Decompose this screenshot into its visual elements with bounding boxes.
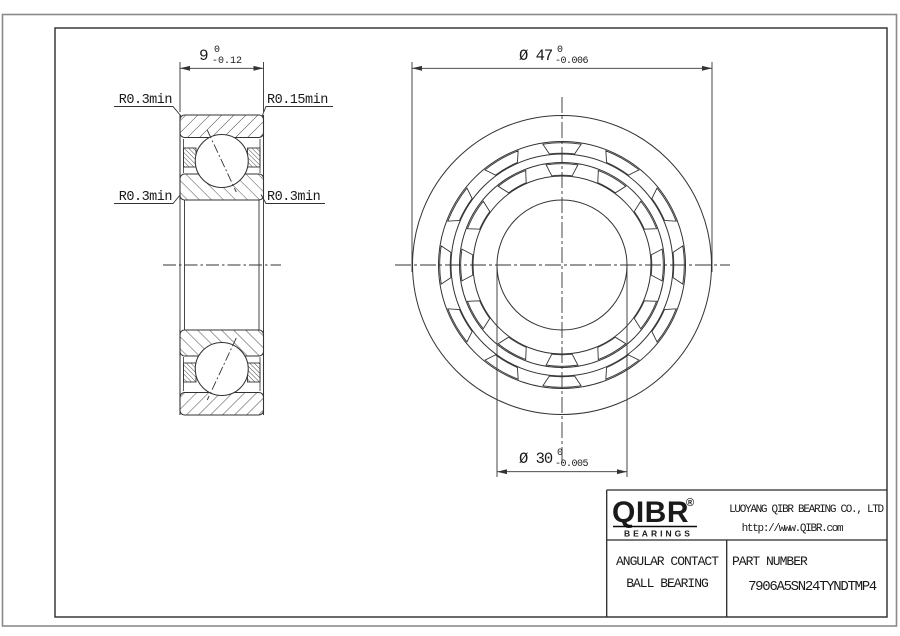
bearing-drawing-canvas: 9 0 -0.12 R0.3min R0.15min R0.3min R0.3m… (0, 0, 900, 636)
radius-label-top-left: R0.3min (119, 93, 172, 108)
logo-subtext: BEARINGS (624, 529, 693, 539)
cage-section-top-right (248, 148, 261, 167)
logo-text: QIBR (612, 496, 689, 529)
od-dimension-tol-lower: -0.006 (555, 56, 589, 67)
radius-label-mid-left: R0.3min (119, 190, 172, 205)
width-dimension-tol-lower: -0.12 (212, 56, 242, 67)
od-dimension-value: Ø 47 (519, 47, 553, 65)
company-name: LUOYANG QIBR BEARING CO., LTD (729, 504, 884, 516)
bore-dimension-tol-lower: -0.005 (555, 459, 589, 470)
registered-trademark-icon: ® (686, 497, 694, 509)
cage-section-bottom-right (248, 363, 261, 382)
width-dimension-value: 9 (199, 47, 209, 65)
company-logo: QIBR ® BEARINGS (612, 496, 697, 539)
drawing-sheet: 9 0 -0.12 R0.3min R0.15min R0.3min R0.3m… (0, 0, 900, 636)
radius-label-top-right: R0.15min (267, 93, 328, 108)
cage-section-bottom-left (184, 363, 197, 382)
product-type-line2: BALL BEARING (626, 576, 708, 591)
od-dimension-tol-upper: 0 (557, 45, 563, 56)
product-type-line1: ANGULAR CONTACT (616, 554, 719, 569)
bore-dimension-tol-upper: 0 (557, 448, 563, 459)
cage-section-top-left (184, 148, 197, 167)
radius-label-mid-right: R0.3min (267, 190, 320, 205)
company-website: http://www.QIBR.com (742, 523, 844, 535)
width-dimension-tol-upper: 0 (214, 45, 220, 56)
bore-dimension-value: Ø 30 (519, 450, 553, 468)
part-number: 7906A5SN24TYNDTMP4 (748, 579, 877, 595)
part-number-label: PART NUMBER (732, 554, 808, 569)
